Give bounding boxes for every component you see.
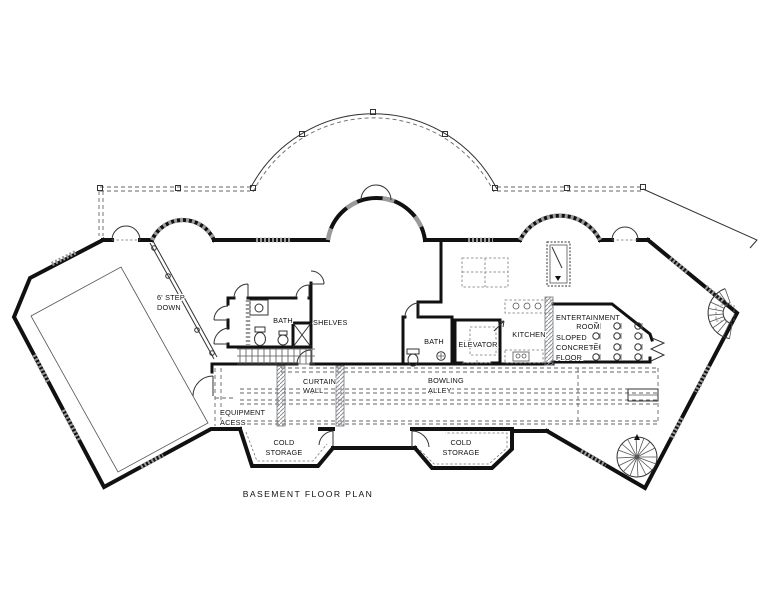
ping-pong-table (462, 258, 508, 287)
spiral-staircase (617, 434, 657, 477)
left-wing (31, 241, 217, 472)
label-curtain-wall-2: WALL (303, 386, 323, 395)
basement-floor-plan: 6' STEP DOWN BATH SHELVES BATH ELEVATOR … (0, 0, 760, 608)
label-sloped-2: CONCRETE (556, 343, 599, 352)
label-cold-left-2: STORAGE (266, 448, 303, 457)
label-step-down: 6' STEP (157, 293, 185, 302)
label-cold-right: COLD (450, 438, 471, 447)
label-cold-left: COLD (273, 438, 294, 447)
toilet-tank (255, 327, 265, 332)
curtain-wall-columns (277, 366, 344, 426)
label-kitchen: KITCHEN (512, 330, 545, 339)
cue-stick (552, 247, 562, 268)
label-entertainment-2: ROOM (576, 322, 600, 331)
label-step-down-2: DOWN (157, 303, 181, 312)
screen-wall (545, 297, 553, 365)
pool-table (547, 242, 570, 286)
window-segments (34, 240, 724, 467)
label-entertainment: ENTERTAINMENT (556, 313, 620, 322)
theater-seats (593, 323, 642, 360)
rack-triangle (555, 276, 561, 281)
label-sloped-3: FLOOR (556, 353, 582, 362)
main-staircase (237, 349, 315, 364)
cold-storage-right-door (412, 431, 429, 447)
label-bath-center: BATH (424, 337, 444, 346)
label-bath-left: BATH (273, 316, 293, 325)
label-curtain-wall: CURTAIN (303, 377, 336, 386)
label-sloped: SLOPED (556, 333, 587, 342)
exterior-walls (14, 198, 737, 488)
label-equipment-2: ACESS (220, 418, 246, 427)
label-bowling-2: ALLEY (428, 386, 452, 395)
interior-walls (212, 240, 652, 372)
label-equipment: EQUIPMENT (220, 408, 266, 417)
curved-stair-east (708, 289, 734, 339)
label-cold-right-2: STORAGE (443, 448, 480, 457)
toilet-bowl (255, 333, 266, 346)
entertainment-door (651, 338, 664, 361)
label-shelves: SHELVES (313, 318, 348, 327)
kitchen-sink (513, 352, 529, 361)
label-elevator: ELEVATOR (458, 340, 497, 349)
plan-title: BASEMENT FLOOR PLAN (243, 489, 374, 499)
bay-window-arc-center (328, 198, 425, 240)
deck-posts (98, 110, 646, 191)
cold-storage-left-door (319, 431, 333, 446)
floor-plan-svg: 6' STEP DOWN BATH SHELVES BATH ELEVATOR … (0, 0, 760, 608)
deck-outline (98, 110, 758, 249)
shelves-closet-x (293, 323, 311, 347)
label-bowling: BOWLING (428, 376, 464, 385)
